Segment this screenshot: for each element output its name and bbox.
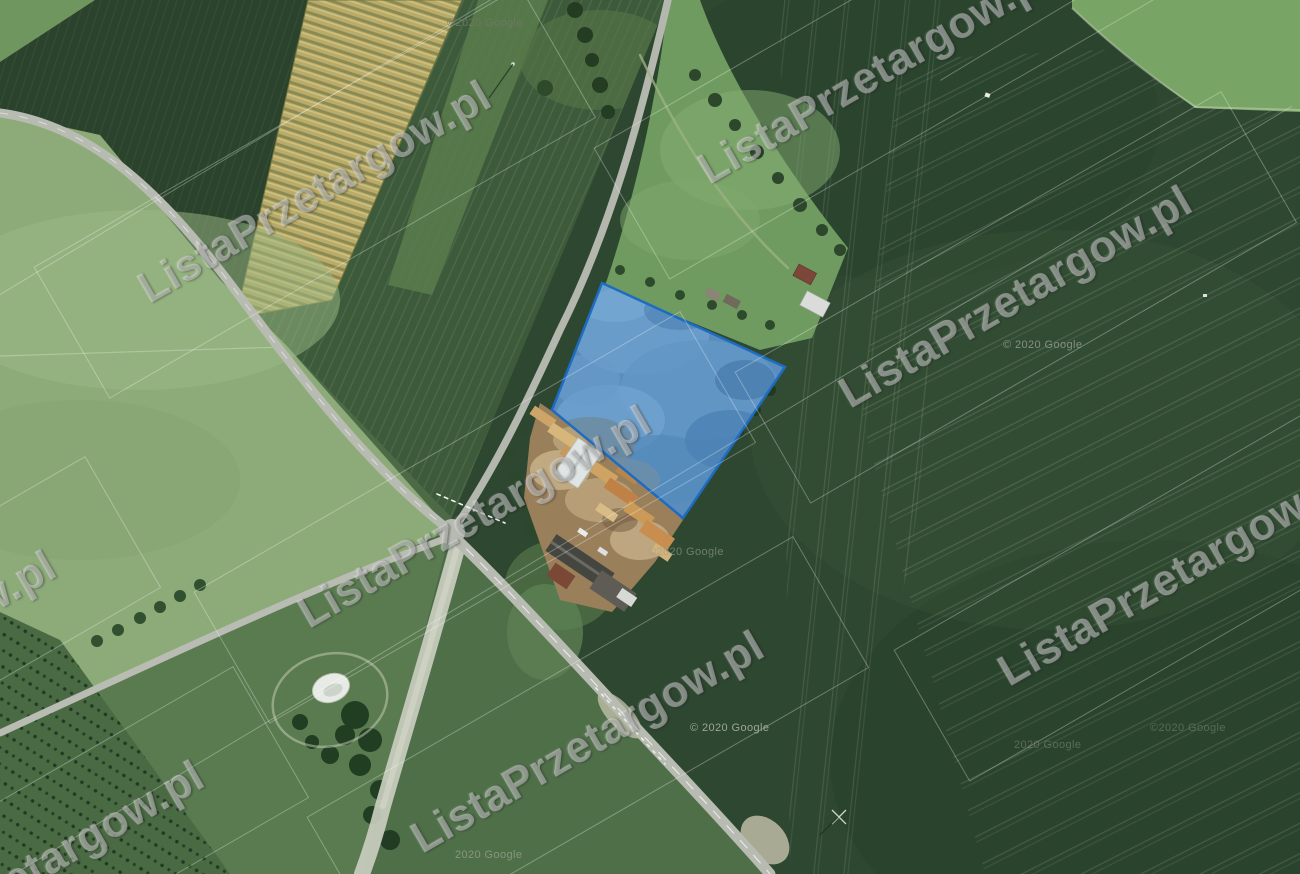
watermark-layer: ListaPrzetargow.pl ListaPrzetargow.pl Li…: [0, 0, 1300, 874]
watermark-text: ListaPrzetargow.pl: [0, 541, 65, 784]
google-credit: ©2020 Google: [1150, 722, 1226, 734]
watermark-text: ListaPrzetargow.pl: [403, 621, 773, 864]
google-credit: 2020 Google: [455, 849, 522, 861]
watermark-text: ListaPrzetargow.pl: [130, 71, 500, 314]
watermark: ListaPrzetargow.pl: [34, 0, 597, 399]
watermark-text: ListaPrzetargow.pl: [831, 176, 1201, 419]
google-credit: ©2020 Google: [648, 546, 724, 558]
google-credit: © 2020 Google: [690, 722, 769, 734]
google-credit: 2020 Google: [1014, 739, 1081, 751]
watermark-text: ListaPrzetargow.pl: [0, 751, 213, 874]
satellite-map: ListaPrzetargow.pl ListaPrzetargow.pl Li…: [0, 0, 1300, 874]
watermark: ListaPrzetargow.pl: [894, 369, 1300, 782]
google-credit: © 2020 Google: [1003, 339, 1082, 351]
google-credit: ©2020 Google: [447, 17, 523, 29]
watermark-text: ListaPrzetargow.pl: [690, 0, 1060, 195]
watermark-text: ListaPrzetargow.pl: [290, 396, 660, 639]
watermark-text: ListaPrzetargow.pl: [990, 454, 1300, 697]
